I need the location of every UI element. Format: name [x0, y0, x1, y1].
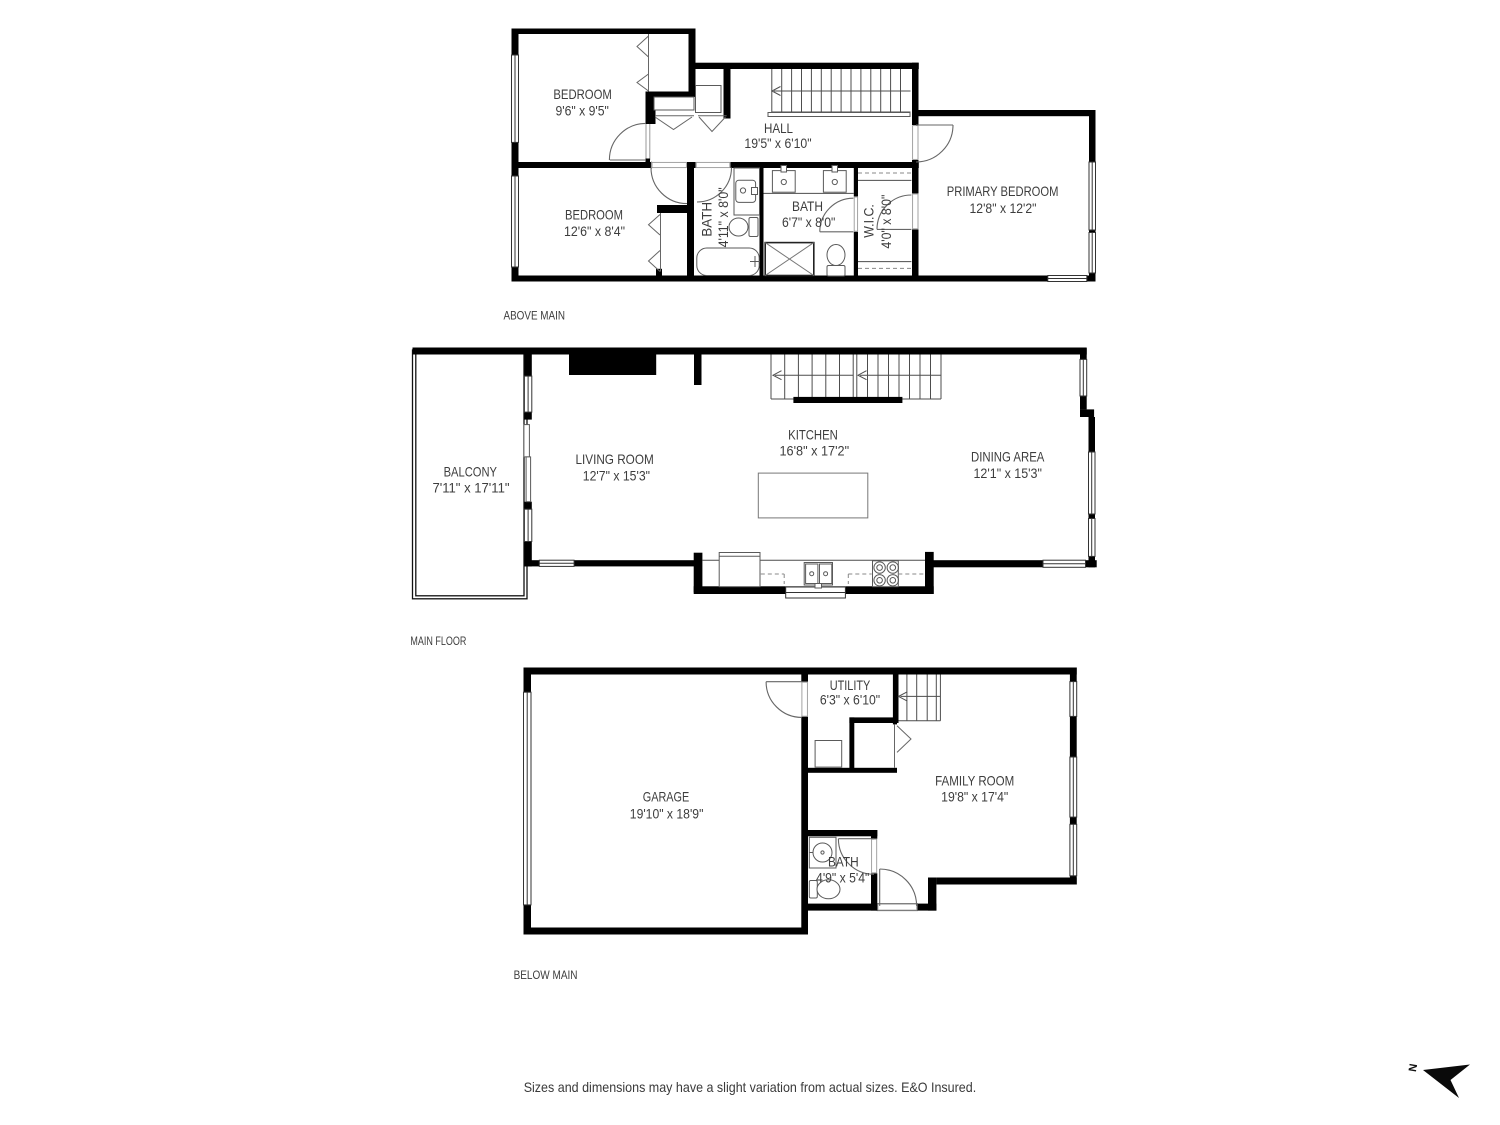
svg-text:BEDROOM: BEDROOM — [565, 207, 623, 223]
svg-text:W.I.C.: W.I.C. — [861, 204, 877, 238]
svg-text:19'5" x 6'10": 19'5" x 6'10" — [744, 135, 811, 151]
svg-text:4'11" x 8'0": 4'11" x 8'0" — [715, 187, 731, 247]
svg-text:4'0" x 8'0": 4'0" x 8'0" — [878, 195, 894, 249]
svg-text:GARAGE: GARAGE — [643, 789, 690, 805]
svg-text:KITCHEN: KITCHEN — [788, 426, 838, 442]
svg-text:6'7" x 8'0": 6'7" x 8'0" — [782, 214, 835, 230]
svg-text:12'1" x 15'3": 12'1" x 15'3" — [974, 465, 1042, 481]
svg-text:BELOW MAIN: BELOW MAIN — [514, 970, 578, 982]
svg-text:Sizes and dimensions may have: Sizes and dimensions may have a slight v… — [524, 1079, 977, 1095]
svg-text:BATH: BATH — [828, 854, 859, 870]
svg-text:BATH: BATH — [699, 202, 715, 237]
svg-text:19'8" x 17'4": 19'8" x 17'4" — [941, 788, 1008, 804]
svg-text:ABOVE MAIN: ABOVE MAIN — [504, 311, 566, 323]
svg-text:UTILITY: UTILITY — [830, 677, 871, 693]
svg-text:BEDROOM: BEDROOM — [553, 86, 612, 102]
svg-text:9'6" x 9'5": 9'6" x 9'5" — [556, 103, 609, 119]
svg-text:7'11" x 17'11": 7'11" x 17'11" — [432, 480, 509, 496]
svg-text:HALL: HALL — [764, 120, 793, 136]
svg-text:DINING AREA: DINING AREA — [971, 449, 1045, 465]
svg-text:12'6" x 8'4": 12'6" x 8'4" — [564, 223, 625, 239]
svg-text:19'10" x 18'9": 19'10" x 18'9" — [630, 805, 704, 821]
svg-text:N: N — [1405, 1063, 1418, 1073]
svg-text:12'7" x 15'3": 12'7" x 15'3" — [583, 467, 650, 483]
svg-text:4'9" x 5'4": 4'9" x 5'4" — [816, 870, 869, 886]
svg-text:BATH: BATH — [792, 198, 823, 214]
svg-text:FAMILY ROOM: FAMILY ROOM — [935, 773, 1014, 789]
svg-text:16'8" x 17'2": 16'8" x 17'2" — [780, 443, 850, 459]
svg-text:PRIMARY BEDROOM: PRIMARY BEDROOM — [947, 183, 1059, 199]
svg-text:6'3" x 6'10": 6'3" x 6'10" — [820, 692, 880, 708]
svg-text:12'8" x 12'2": 12'8" x 12'2" — [970, 200, 1037, 216]
svg-text:MAIN FLOOR: MAIN FLOOR — [410, 636, 466, 648]
svg-text:BALCONY: BALCONY — [444, 463, 498, 479]
svg-text:LIVING ROOM: LIVING ROOM — [575, 451, 653, 467]
